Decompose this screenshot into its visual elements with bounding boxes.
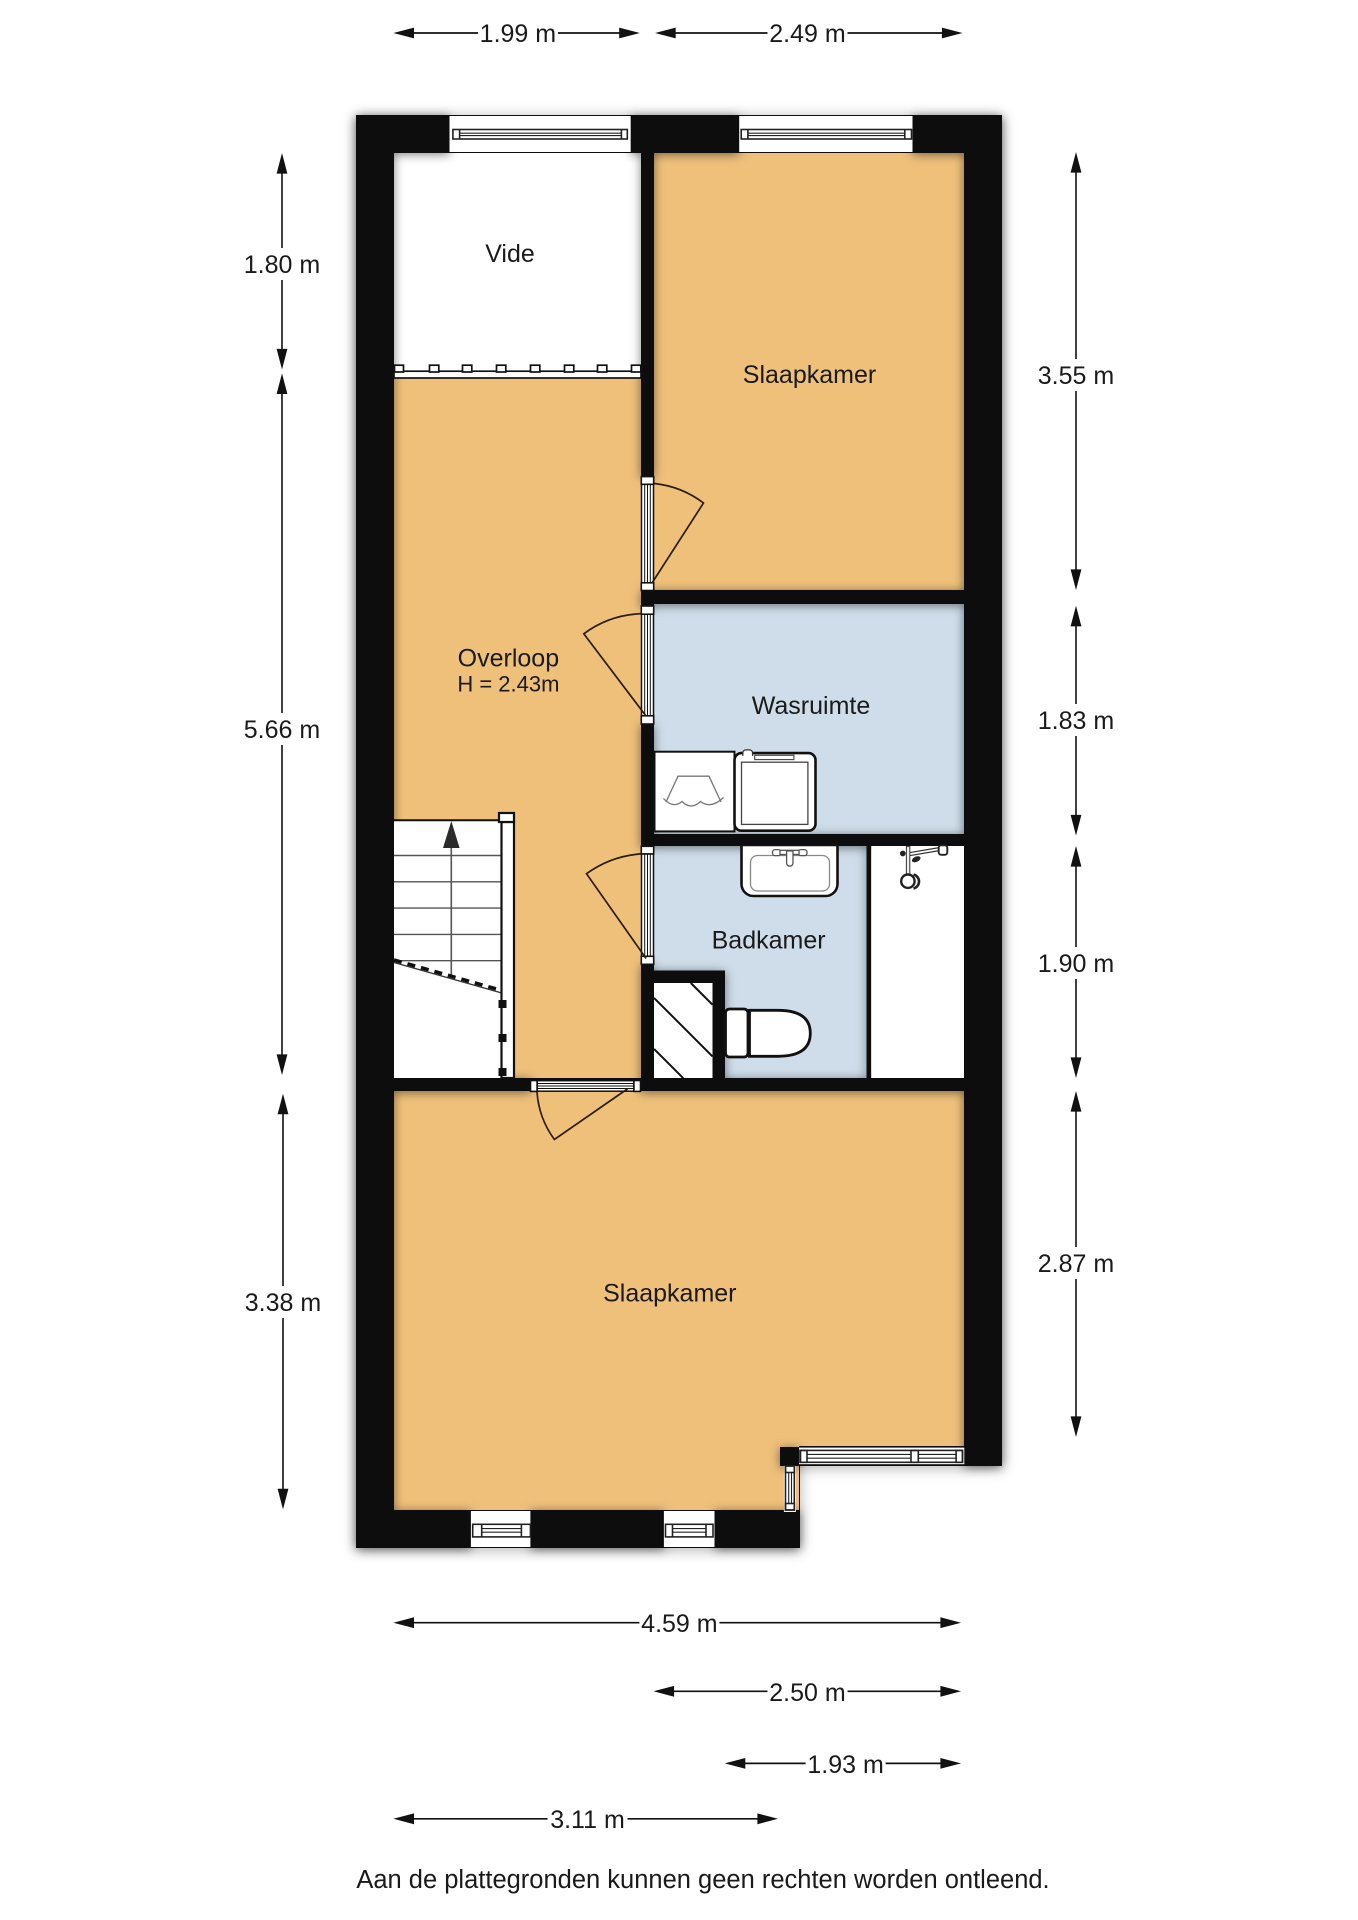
svg-text:2.87 m: 2.87 m	[1038, 1250, 1114, 1278]
svg-text:H = 2.43m: H = 2.43m	[457, 672, 559, 697]
svg-text:1.90 m: 1.90 m	[1038, 950, 1114, 978]
svg-text:Slaapkamer: Slaapkamer	[603, 1280, 736, 1308]
svg-text:2.49 m: 2.49 m	[769, 20, 845, 48]
svg-text:Wasruimte: Wasruimte	[752, 692, 871, 720]
svg-text:3.11 m: 3.11 m	[550, 1806, 625, 1834]
svg-text:3.55 m: 3.55 m	[1038, 362, 1114, 390]
svg-text:Aan de plattegronden kunnen ge: Aan de plattegronden kunnen geen rechten…	[356, 1866, 1049, 1894]
svg-text:Badkamer: Badkamer	[712, 926, 826, 954]
svg-text:1.80 m: 1.80 m	[244, 251, 320, 279]
svg-text:1.83 m: 1.83 m	[1038, 707, 1114, 735]
svg-text:2.50 m: 2.50 m	[769, 1679, 845, 1707]
svg-text:3.38 m: 3.38 m	[245, 1289, 321, 1317]
svg-text:Overloop: Overloop	[458, 645, 559, 673]
svg-text:Slaapkamer: Slaapkamer	[743, 361, 876, 389]
svg-text:1.99 m: 1.99 m	[480, 20, 556, 48]
svg-text:1.93 m: 1.93 m	[807, 1751, 883, 1779]
svg-text:Vide: Vide	[485, 240, 535, 268]
svg-text:5.66 m: 5.66 m	[244, 716, 320, 744]
svg-text:4.59 m: 4.59 m	[641, 1610, 717, 1638]
